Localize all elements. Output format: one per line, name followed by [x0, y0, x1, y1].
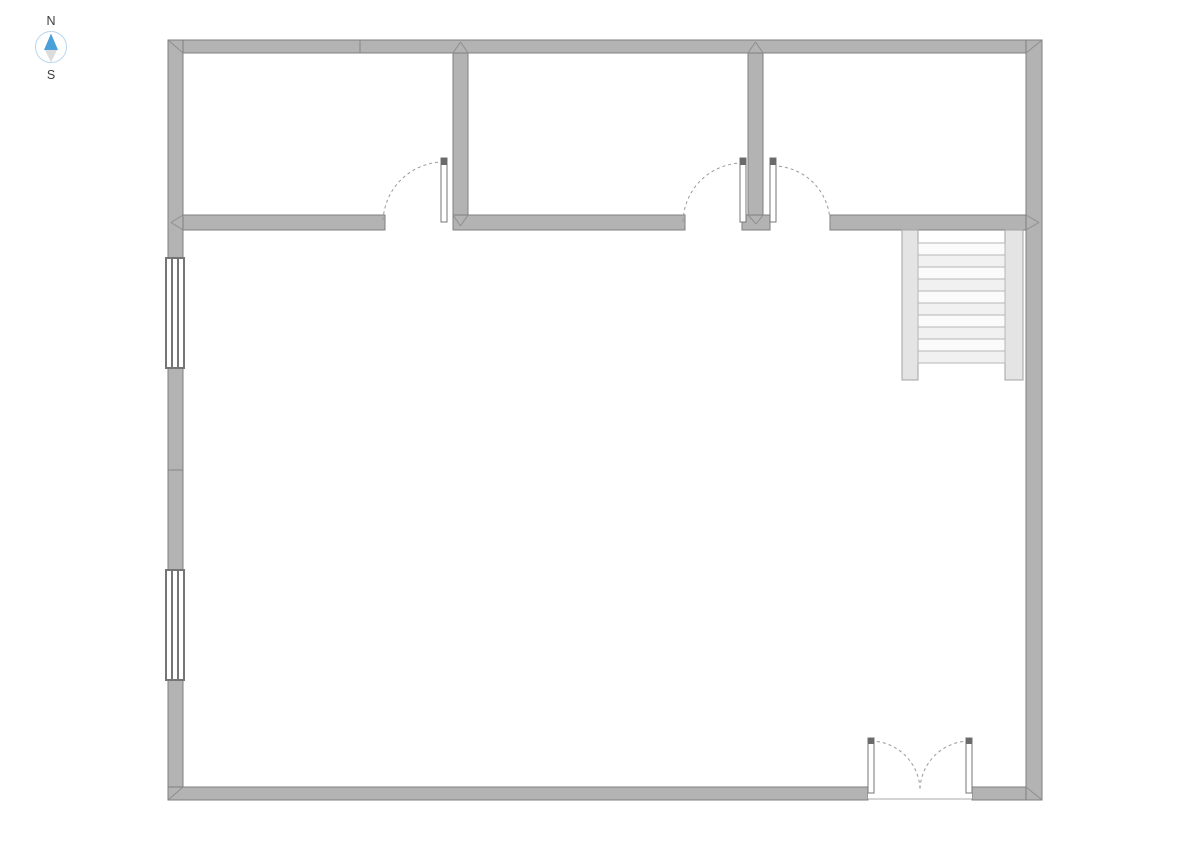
- window-2: [166, 570, 184, 680]
- door-room-2-cap: [740, 158, 746, 165]
- double-door-right-leaf-cap: [966, 738, 972, 744]
- interior-wall-horizontal-right: [830, 215, 1026, 230]
- double-door-left-leaf: [868, 738, 874, 793]
- door-room-3-cap: [770, 158, 776, 165]
- interior-wall-horizontal-mid: [453, 215, 685, 230]
- stair-tread: [918, 315, 1005, 327]
- outer-wall-left: [168, 40, 183, 800]
- stair-tread: [918, 243, 1005, 255]
- floor-plan-layers: [166, 40, 1042, 800]
- door-room-1-swing-arc: [383, 162, 444, 223]
- compass-south-label: S: [47, 68, 55, 82]
- floor-plan-canvas: N S: [0, 0, 1191, 842]
- compass: N S: [36, 14, 67, 82]
- stair-tread: [918, 351, 1005, 363]
- outer-wall-right: [1026, 40, 1042, 800]
- double-door-right-leaf: [966, 738, 972, 793]
- door-room-3: [770, 158, 776, 222]
- interior-wall-horizontal-left: [183, 215, 385, 230]
- door-room-2-swing-arc: [683, 163, 743, 223]
- double-door-left-leaf-swing-arc: [871, 741, 920, 789]
- stair-tread: [918, 339, 1005, 351]
- outer-wall-top: [168, 40, 1042, 53]
- compass-north-label: N: [46, 14, 55, 28]
- double-door-threshold: [868, 788, 972, 800]
- stair-stringer-right: [1005, 230, 1023, 380]
- door-room-1: [441, 158, 447, 222]
- door-room-2: [740, 158, 746, 222]
- interior-wall-vertical-1: [453, 53, 468, 230]
- door-room-1-cap: [441, 158, 447, 165]
- stair-tread: [918, 291, 1005, 303]
- stair-tread: [918, 327, 1005, 339]
- interior-wall-vertical-2: [748, 53, 763, 215]
- double-door-left-leaf-cap: [868, 738, 874, 744]
- double-door-right-leaf-swing-arc: [920, 741, 969, 789]
- stair-tread: [918, 303, 1005, 315]
- stair-tread: [918, 279, 1005, 291]
- window-1: [166, 258, 184, 368]
- stair-tread: [918, 255, 1005, 267]
- stair-stringer-left: [902, 230, 918, 380]
- floor-plan-page: N S: [0, 0, 1191, 842]
- outer-wall-bottom-left: [168, 787, 868, 800]
- stair-tread: [918, 267, 1005, 279]
- door-room-3-swing-arc: [773, 166, 830, 223]
